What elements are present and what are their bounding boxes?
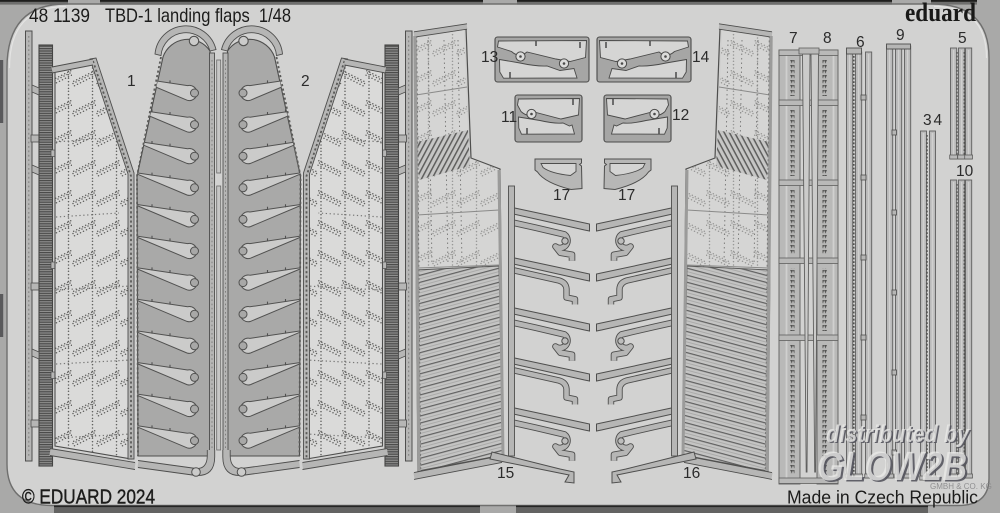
svg-text:17: 17: [618, 187, 635, 204]
svg-text:4: 4: [934, 112, 943, 129]
svg-text:6: 6: [856, 34, 865, 51]
svg-text:eduard: eduard: [905, 0, 976, 27]
svg-text:TBD-1 landing flaps 1/48: TBD-1 landing flaps 1/48: [105, 5, 291, 27]
svg-text:48 1139: 48 1139: [29, 5, 90, 27]
svg-text:10: 10: [956, 163, 974, 180]
svg-text:1: 1: [127, 73, 136, 90]
svg-text:GMBH & CO. KG: GMBH & CO. KG: [930, 482, 992, 491]
svg-text:8: 8: [823, 30, 832, 47]
svg-text:2: 2: [301, 73, 310, 90]
svg-text:12: 12: [672, 107, 689, 124]
svg-text:© EDUARD 2024: © EDUARD 2024: [22, 487, 155, 509]
svg-text:11: 11: [501, 109, 517, 126]
svg-text:14: 14: [692, 49, 710, 66]
svg-text:5: 5: [958, 30, 967, 47]
svg-text:15: 15: [497, 465, 514, 482]
svg-text:3: 3: [923, 112, 932, 129]
svg-text:17: 17: [553, 187, 570, 204]
svg-text:7: 7: [789, 30, 798, 47]
svg-text:16: 16: [683, 465, 700, 482]
svg-text:9: 9: [896, 27, 905, 44]
svg-text:13: 13: [481, 49, 498, 66]
